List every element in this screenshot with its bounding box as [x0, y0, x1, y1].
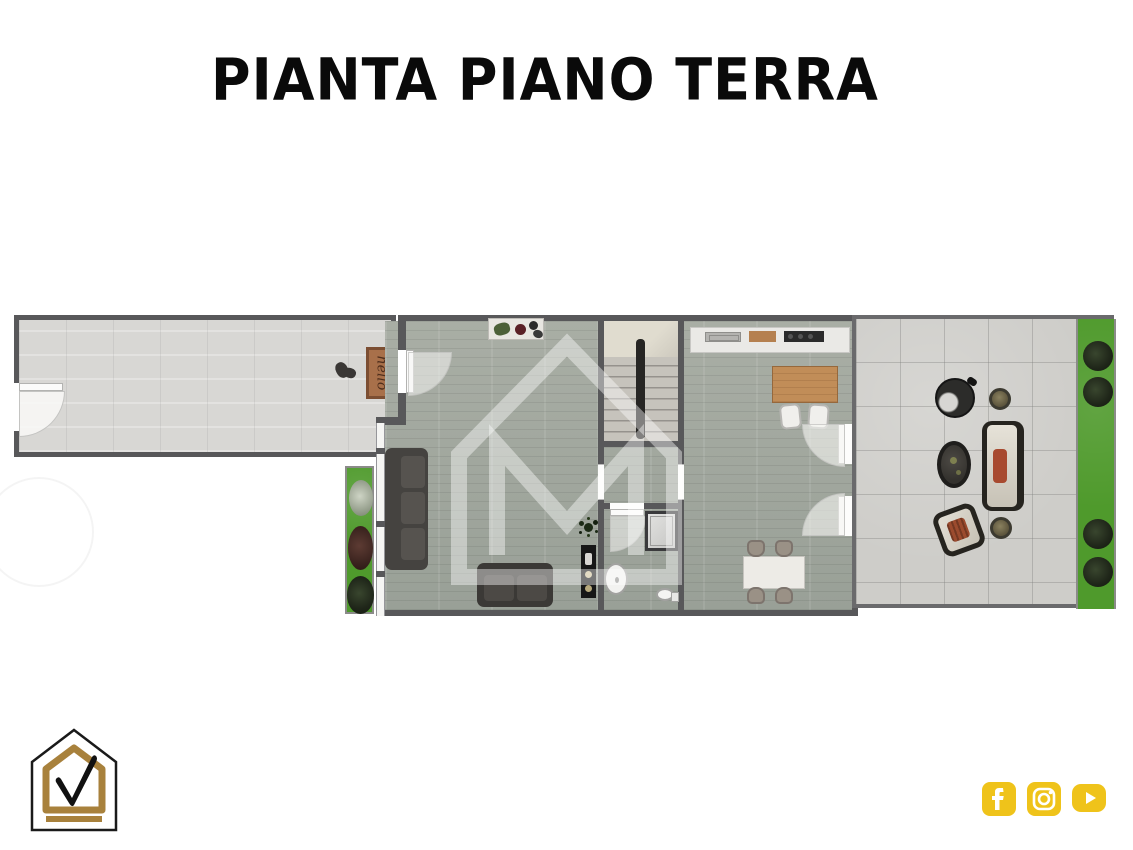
- front-door-opening: [398, 350, 406, 393]
- house-m-watermark-icon: [429, 327, 704, 602]
- instagram-icon: [1027, 782, 1061, 816]
- dining-chair: [747, 587, 765, 604]
- dining-chair: [747, 540, 765, 557]
- bush: [1083, 519, 1113, 549]
- faint-circle-watermark: [0, 477, 94, 587]
- house-checkmark-logo-icon: [28, 726, 120, 834]
- dining-table: [743, 556, 805, 589]
- garden-strip-right: [1076, 319, 1116, 609]
- garage-room: [14, 315, 396, 457]
- bar-stool: [779, 403, 802, 430]
- window-mullion: [376, 521, 385, 527]
- bush: [1083, 377, 1113, 407]
- window-mullion: [376, 571, 385, 577]
- cutting-board: [749, 331, 776, 342]
- outdoor-coffee-table: [937, 441, 971, 488]
- kitchen-island: [772, 366, 838, 403]
- sectional-sofa: [385, 448, 428, 570]
- window-mullion: [376, 448, 385, 454]
- outdoor-sofa-red-pillow: [993, 449, 1007, 483]
- dining-chair: [775, 540, 793, 557]
- page-title: PIANTA PIANO TERRA: [0, 45, 1090, 113]
- cooktop: [784, 331, 824, 342]
- maroon-bush: [348, 526, 373, 570]
- sage-plant: [349, 480, 373, 516]
- outdoor-sofa: [982, 421, 1024, 511]
- kitchen-counter: [690, 327, 850, 353]
- social-icons-row: [982, 782, 1112, 818]
- facebook-icon: [982, 782, 1016, 816]
- dark-bush: [347, 576, 374, 614]
- garage-door-leaf: [19, 383, 63, 391]
- youtube-icon: [1072, 782, 1106, 814]
- shoes: [336, 360, 356, 382]
- bush: [1083, 341, 1113, 371]
- planter-pot: [990, 517, 1012, 539]
- floor-plan-page: PIANTA PIANO TERRA hello: [0, 0, 1133, 850]
- garden-strip-left: [345, 466, 374, 614]
- house-wall-bottom: [376, 610, 858, 616]
- floor-plan: hello: [14, 312, 1124, 618]
- bush: [1083, 557, 1113, 587]
- planter-pot: [989, 388, 1011, 410]
- bbq-grill: [935, 378, 975, 418]
- kitchen-sink: [705, 332, 741, 342]
- dining-chair: [775, 587, 793, 604]
